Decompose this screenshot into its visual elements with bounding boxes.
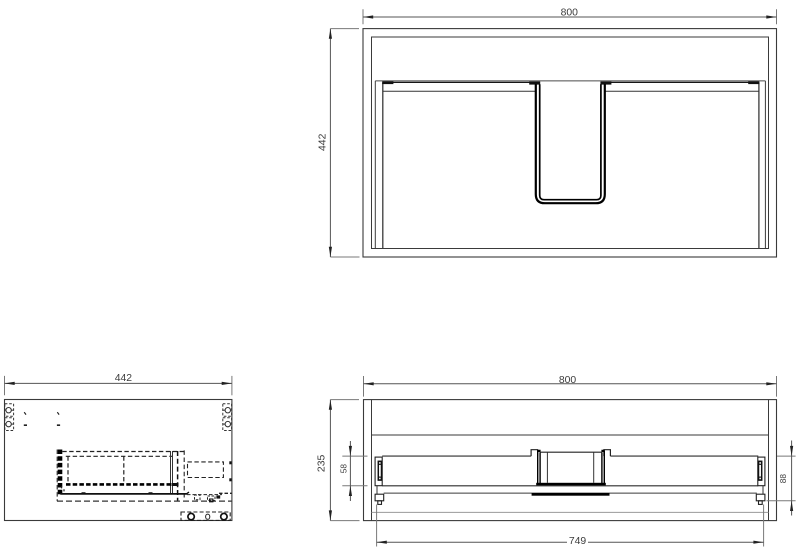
svg-text:235: 235 — [316, 455, 327, 473]
svg-text:58: 58 — [338, 464, 348, 474]
svg-text:442: 442 — [115, 373, 133, 384]
svg-text:749: 749 — [569, 536, 587, 547]
svg-text:88: 88 — [778, 474, 788, 484]
svg-text:800: 800 — [561, 8, 579, 19]
svg-text:442: 442 — [318, 133, 329, 151]
svg-text:800: 800 — [559, 375, 577, 386]
